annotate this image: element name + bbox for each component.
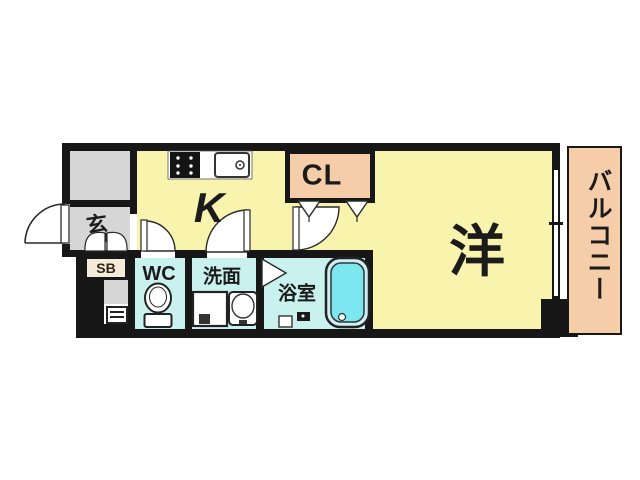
shelf-icon xyxy=(106,306,128,324)
doorway-entrance-kitchen xyxy=(130,214,137,250)
wall-wc-washroom xyxy=(185,257,192,330)
window-line-outer xyxy=(558,170,560,296)
wall-shaft-bottom xyxy=(62,200,137,207)
wall-washroom-bathroom xyxy=(256,257,264,330)
entrance-label: 玄 xyxy=(85,213,109,237)
wall-wc-left xyxy=(128,257,135,338)
entrance-corridor-notch xyxy=(104,280,128,304)
utility-shaft xyxy=(68,151,130,201)
window-mullion xyxy=(549,222,563,225)
floorplan: 玄 SB K CL 洋 WC 洗面 浴室 バルコニー xyxy=(0,0,640,480)
doorway-wc xyxy=(141,250,175,258)
wall-bottom xyxy=(76,329,560,338)
window-line-inner xyxy=(552,170,554,296)
kitchen-label: K xyxy=(194,187,224,229)
wall-window-top xyxy=(552,143,560,170)
balcony-label: バルコニー xyxy=(580,168,610,328)
wall-left-upper xyxy=(62,143,70,207)
wall-bathroom-right xyxy=(365,250,373,338)
doorway-washroom xyxy=(207,250,247,258)
wall-sb-left xyxy=(76,252,84,338)
toilet-label: WC xyxy=(142,264,175,284)
front-door-swing-icon xyxy=(25,204,65,243)
doorway-front xyxy=(61,204,70,244)
closet-label: CL xyxy=(302,162,343,191)
western-room-label: 洋 xyxy=(449,224,505,280)
washroom-label: 洗面 xyxy=(203,268,241,287)
bathroom-label: 浴室 xyxy=(278,285,316,304)
wall-entrance-kitchen xyxy=(130,143,137,214)
shoe-box-label: SB xyxy=(96,261,115,275)
